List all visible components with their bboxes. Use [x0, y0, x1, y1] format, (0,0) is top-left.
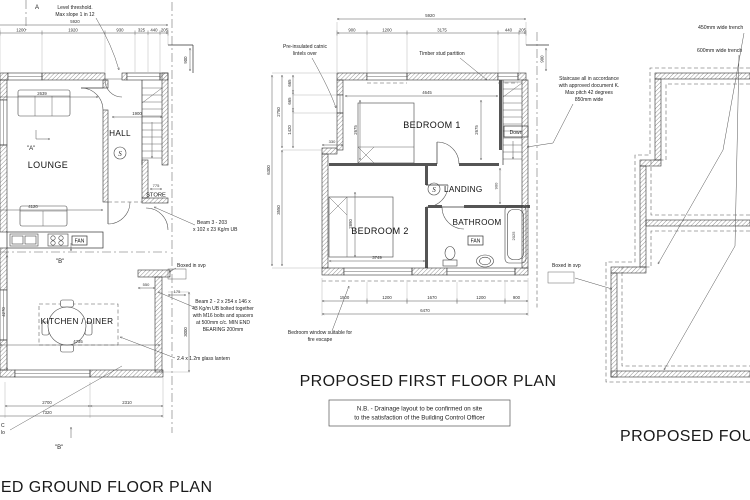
- wall: [0, 73, 8, 80]
- wall: [515, 268, 528, 275]
- dim-label: 775: [153, 183, 160, 188]
- chair: [61, 300, 74, 307]
- leader-line: [527, 104, 573, 147]
- sink-bowl: [25, 236, 36, 244]
- annotation-fire-escape: Bedroom window suitable for: [288, 330, 353, 336]
- dim-label: 4120: [28, 204, 38, 209]
- door-swing: [146, 208, 168, 230]
- ground-floor-plan: A "B" "B" "A" 5920 1200 1920 930 325 440…: [0, 0, 254, 496]
- section-marker-b-bottom: "B": [55, 445, 63, 451]
- drainage-note: to the satisfaction of the Building Cont…: [354, 415, 485, 422]
- room-label-bedroom2: BEDROOM 2: [351, 226, 409, 236]
- room-label-hall: HALL: [109, 129, 131, 138]
- dim-label: 4735: [73, 339, 83, 344]
- section-marker-b-mid: "B": [56, 259, 64, 265]
- dim-label: 6470: [420, 308, 430, 313]
- smoke-detector-letter: S: [432, 186, 436, 194]
- bed: [358, 103, 414, 163]
- annotation-catnic: lintels over: [293, 51, 317, 57]
- dim-label: 550: [143, 282, 150, 287]
- foundation-wall: [655, 73, 750, 79]
- wall: [322, 148, 337, 154]
- annotation-boxed-svp: Boxed in svp: [552, 263, 581, 269]
- leader-line: [158, 292, 196, 308]
- foundation-wall: [611, 267, 646, 273]
- annotation-trench-600: 600mm wide trench: [697, 48, 742, 54]
- foundation-wall: [640, 160, 661, 166]
- dim-label: 1200: [476, 295, 486, 300]
- svp-box: [548, 272, 574, 283]
- room-label-landing: LANDING: [444, 185, 483, 194]
- dim-label: 3175: [437, 28, 447, 33]
- leader-line: [664, 55, 739, 370]
- stud-partition: [464, 205, 530, 208]
- sofa-cushions: [18, 96, 70, 116]
- bed-linen: [329, 197, 347, 257]
- wall: [162, 73, 168, 165]
- dim-label: 2675: [353, 125, 358, 135]
- section-marker-a-top: A: [35, 5, 39, 11]
- annotation-beam2: 43 Kg/m UB bolted together: [192, 306, 254, 312]
- dim-label: 1200: [16, 28, 26, 33]
- dim-label: 1920: [68, 28, 78, 33]
- dim-label: 6300: [266, 165, 271, 175]
- dim-label: 440: [505, 28, 513, 33]
- clipped-annotation: lo: [1, 430, 5, 436]
- dim-label: 440: [150, 28, 158, 33]
- dim-label: 2639: [37, 91, 47, 96]
- annotation-boxed-svp: Boxed in svp: [177, 263, 206, 269]
- annotation-stud-partition: Timber stud partition: [419, 51, 465, 57]
- hob-ring: [51, 236, 55, 240]
- stair-break-line: [142, 88, 162, 103]
- annotation-beam3: Beam 3 - 203: [197, 220, 227, 226]
- stud-partition: [329, 163, 437, 166]
- basin: [477, 255, 494, 267]
- note-box: [329, 400, 510, 426]
- wall: [522, 80, 528, 268]
- leader-line: [312, 58, 336, 108]
- hob-ring: [59, 236, 63, 240]
- dim-label: 900: [183, 56, 188, 64]
- wall: [322, 268, 344, 275]
- wall: [103, 110, 108, 202]
- hob-ring: [51, 241, 55, 245]
- stud-partition: [425, 207, 428, 268]
- door-swing: [81, 88, 103, 110]
- fan-label: FAN: [75, 239, 85, 245]
- stud-partition: [428, 205, 442, 208]
- chair: [61, 345, 74, 352]
- smoke-detector-letter: S: [118, 150, 122, 158]
- dim-label: 900: [513, 295, 521, 300]
- dim-label: 1420: [287, 125, 292, 135]
- dim-label: 2700: [42, 400, 52, 405]
- wall: [122, 73, 127, 80]
- dim-label: 900: [494, 182, 499, 189]
- stud-partition: [425, 166, 428, 185]
- wall: [0, 145, 7, 232]
- first-floor-plan: 5920 900 1200 3175 440 205 Pre-insulated…: [266, 13, 619, 426]
- plan-title-foundation: PROPOSED FOUNDATION PLAN: [620, 428, 750, 445]
- sink-bowl: [12, 236, 23, 244]
- dim-label: 900: [540, 55, 545, 63]
- room-label-store: STORE: [146, 193, 166, 199]
- wall: [337, 80, 343, 95]
- dim-label: 665: [287, 79, 292, 87]
- room-label-kitchen: KITCHEN / DINER: [41, 317, 114, 326]
- dim-label: 2675: [474, 125, 479, 135]
- wall: [138, 270, 170, 277]
- wall: [103, 80, 108, 88]
- extension-lines: [5, 378, 163, 418]
- section-marker-a-mid: "A": [27, 146, 35, 152]
- dim-label: 1900: [132, 111, 142, 116]
- annotation-trench-450: 450mm wide trench: [698, 25, 743, 31]
- dim-label: 1200: [382, 295, 392, 300]
- wall: [0, 370, 15, 377]
- basin-bowl: [480, 257, 491, 265]
- dim-label: 3000: [183, 327, 188, 337]
- bed-linen: [358, 147, 414, 163]
- fan-label: FAN: [471, 239, 481, 245]
- dim-label: 1670: [427, 295, 437, 300]
- wall: [142, 198, 168, 203]
- extension-lines: [0, 28, 168, 72]
- wall: [412, 268, 447, 275]
- wall: [0, 248, 7, 290]
- annotation-beam3: x 102 x 23 Kg/m UB: [193, 227, 238, 233]
- wall: [42, 73, 105, 80]
- drawing-sheet: A "B" "B" "A" 5920 1200 1920 930 325 440…: [0, 0, 750, 500]
- annotation-staircase: Staircase all in accordance: [559, 76, 619, 82]
- room-label-bedroom1: BEDROOM 1: [403, 120, 461, 130]
- kitchen-counter: [7, 232, 103, 248]
- stud-partition: [499, 80, 502, 150]
- floor-plan-drawing: A "B" "B" "A" 5920 1200 1920 930 325 440…: [0, 0, 750, 500]
- wall: [337, 73, 367, 80]
- wall: [407, 73, 498, 80]
- dim-label: 3749: [372, 255, 382, 260]
- foundation-wall: [611, 273, 617, 377]
- annotation-staircase: Max pitch 42 degrees: [565, 90, 613, 96]
- annotation-catnic: Pre-insulated catnic: [283, 44, 327, 50]
- annotation-glass-lantern: 2.4 x 1.2m glass lantern: [177, 356, 230, 362]
- dim-label: 2890: [348, 219, 353, 229]
- dim-label: 205: [161, 28, 169, 33]
- dim-label: 330: [329, 139, 336, 144]
- dim-label: 665: [287, 97, 292, 105]
- wall: [0, 340, 7, 370]
- dim-label: 2310: [122, 400, 132, 405]
- dim-label: 2025: [511, 231, 516, 241]
- stud-partition: [459, 163, 499, 166]
- clipped-annotation: C: [1, 423, 5, 429]
- dim-label: 4645: [422, 90, 432, 95]
- wall: [337, 113, 343, 150]
- wall: [90, 370, 163, 377]
- dim-label: 930: [116, 28, 124, 33]
- annotation-beam2: BEARING 200mm: [203, 327, 244, 333]
- annotation-beam2: Beam 2 - 2 x 254 x 146 x: [195, 299, 251, 305]
- leader-line: [96, 18, 119, 70]
- stair-treads: [503, 82, 522, 159]
- trench-inner-edge: [651, 84, 750, 215]
- annotation-level-threshold: Max slope 1 in 12: [55, 12, 94, 18]
- plan-title-first: PROPOSED FIRST FLOOR PLAN: [300, 373, 557, 390]
- dim-label: 900: [348, 28, 356, 33]
- dim-label: 1200: [382, 28, 392, 33]
- dim-label: 5920: [425, 13, 435, 18]
- dim-label: 4270: [1, 307, 6, 317]
- toilet-cistern: [443, 260, 457, 266]
- wall: [155, 277, 162, 372]
- stairs-down-label: Down: [510, 130, 523, 136]
- room-label-lounge: LOUNGE: [28, 160, 68, 170]
- dim-label: 5920: [70, 19, 80, 24]
- wall: [518, 73, 526, 80]
- leader-line: [154, 207, 195, 225]
- svp-box: [168, 269, 186, 279]
- dim-label: 325: [138, 28, 146, 33]
- foundation-wall-internal: [646, 220, 750, 226]
- section-a-arrow-mid: [36, 130, 50, 139]
- annotation-beam2: with M16 bolts and spacers: [193, 313, 254, 319]
- leader-line: [332, 286, 349, 331]
- foundation-wall: [611, 371, 750, 377]
- plan-title-ground: PROPOSED GROUND FLOOR PLAN: [0, 479, 212, 496]
- dim-label: 2750: [276, 107, 281, 117]
- wall: [322, 154, 328, 268]
- door-swing: [437, 142, 459, 164]
- annotation-staircase: with approved document K.: [559, 83, 620, 89]
- room-label-bathroom: BATHROOM: [452, 218, 501, 227]
- door-swing: [108, 202, 130, 224]
- toilet: [445, 247, 455, 260]
- hob-ring: [59, 241, 63, 245]
- stair-break-line: [503, 83, 522, 97]
- leader-line: [658, 33, 744, 264]
- annotation-beam2: at 500mm c/c. MIN END: [196, 320, 250, 326]
- leader-line: [575, 278, 612, 289]
- annotation-fire-escape: fire escape: [308, 337, 333, 343]
- foundation-wall: [640, 166, 646, 267]
- leader-line: [120, 337, 175, 358]
- drainage-note: N.B. - Drainage layout to be confirmed o…: [357, 406, 483, 413]
- annotation-staircase: 850mm wide: [575, 97, 604, 103]
- dim-label: 3550: [276, 205, 281, 215]
- dim-label: 205: [519, 28, 527, 33]
- foundation-wall: [655, 79, 661, 160]
- extension-lines: [337, 22, 526, 72]
- dim-label: 175: [174, 289, 181, 294]
- sofa-cushions: [20, 211, 67, 226]
- sofa: [20, 206, 67, 226]
- annotation-level-threshold: Level threshold.: [57, 5, 92, 11]
